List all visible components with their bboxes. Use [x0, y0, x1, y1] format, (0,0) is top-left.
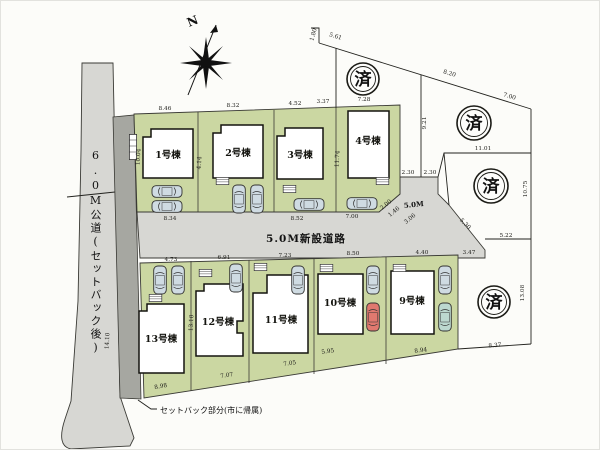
- dim-label: 11.01: [475, 146, 492, 152]
- dim-label: 11.74: [335, 150, 342, 167]
- dim-label: 8.37: [488, 343, 502, 350]
- building-13-label: 13号棟: [145, 333, 178, 345]
- dim-label: 5.22: [500, 233, 513, 239]
- dim-label: 3.47: [463, 250, 476, 256]
- dim-label: 4.73: [165, 257, 178, 263]
- car-icon: [294, 199, 324, 211]
- car-icon: [439, 303, 452, 331]
- stairs-icon: [149, 294, 162, 301]
- sold-stamp-label: 済: [483, 176, 501, 197]
- stairs-icon: [320, 264, 333, 271]
- stairs-icon: [393, 264, 406, 271]
- dim-label: 13.10: [189, 314, 196, 331]
- car-icon: [152, 186, 182, 198]
- car-icon: [251, 185, 264, 213]
- setback-note: セットバック部分(市に帰属): [160, 405, 262, 415]
- car-icon: [233, 185, 246, 213]
- dim-label: 13.08: [520, 284, 526, 301]
- sold-stamp-label: 済: [466, 113, 484, 134]
- dim-label: 2.30: [402, 170, 415, 176]
- dim-label: 3.37: [317, 99, 330, 105]
- dim-label: 4.52: [289, 101, 302, 107]
- dim-label: 1.80: [309, 27, 318, 41]
- dim-label: 7.28: [358, 97, 371, 103]
- building-3-label: 3号棟: [287, 149, 313, 161]
- dim-label: 8.20: [442, 69, 456, 79]
- building-9-label: 9号棟: [399, 295, 425, 307]
- dim-label: 14.10: [105, 332, 112, 349]
- car-icon: [367, 266, 380, 294]
- north-label: N: [185, 13, 200, 30]
- stairs-icon: [283, 185, 296, 192]
- car-icon: [347, 198, 377, 210]
- dim-label: 8.52: [291, 216, 304, 222]
- sold-stamp-label: 済: [486, 292, 504, 313]
- compass-icon: [180, 25, 232, 95]
- boundary-sold3-left: [444, 153, 449, 205]
- car-icon: [439, 266, 452, 294]
- stairs-icon: [254, 263, 267, 270]
- building-1-label: 1号棟: [155, 149, 181, 161]
- building-4-label: 4号棟: [355, 135, 381, 147]
- new-road-label: 5.0M新設道路: [266, 232, 346, 245]
- car-icon: [230, 264, 243, 292]
- sold-stamp-1: 済: [347, 63, 379, 95]
- setback-leader-line: [138, 400, 157, 409]
- dim-label: 8.34: [164, 216, 177, 222]
- stairs-icon: [199, 269, 212, 276]
- stairs-icon: [376, 177, 389, 184]
- dim-label: 6.91: [218, 255, 231, 261]
- dim-label: 7.00: [346, 214, 359, 220]
- dim-label: 9.21: [422, 117, 428, 130]
- sold-stamp-4: 済: [478, 286, 510, 318]
- stairs-icon: [216, 177, 229, 184]
- dim-label: 8.50: [347, 251, 360, 257]
- car-icon: [292, 266, 305, 294]
- car-icon-red: [367, 303, 380, 331]
- car-icon: [172, 266, 185, 294]
- dim-label: 8.32: [227, 103, 240, 109]
- site-plan: 1号棟 2号棟 3号棟 4号棟 13号棟 12号棟 11号棟 10号棟 9号棟 …: [0, 0, 600, 450]
- dim-label: 8.46: [159, 106, 172, 112]
- building-2-label: 2号棟: [225, 147, 251, 159]
- car-icon: [154, 266, 167, 294]
- dim-label: 2.30: [424, 170, 437, 176]
- dim-label: 10.04: [136, 148, 143, 165]
- dim-label: 4.14: [197, 156, 204, 170]
- dim-label: 10.75: [523, 180, 529, 197]
- dim-label: 5.61: [328, 32, 342, 42]
- public-road-label: 6.0M公道(セットバック後): [87, 149, 103, 359]
- sold-stamp-2: 済: [457, 106, 491, 140]
- building-11-label: 11号棟: [265, 314, 298, 326]
- sold-stamp-3: 済: [474, 169, 508, 203]
- building-10-label: 10号棟: [324, 297, 357, 309]
- dim-label: 4.40: [416, 250, 429, 256]
- building-12-label: 12号棟: [202, 316, 235, 328]
- car-icon: [152, 201, 182, 213]
- dim-label: 7.23: [279, 253, 292, 259]
- sold-stamp-label: 済: [355, 69, 373, 90]
